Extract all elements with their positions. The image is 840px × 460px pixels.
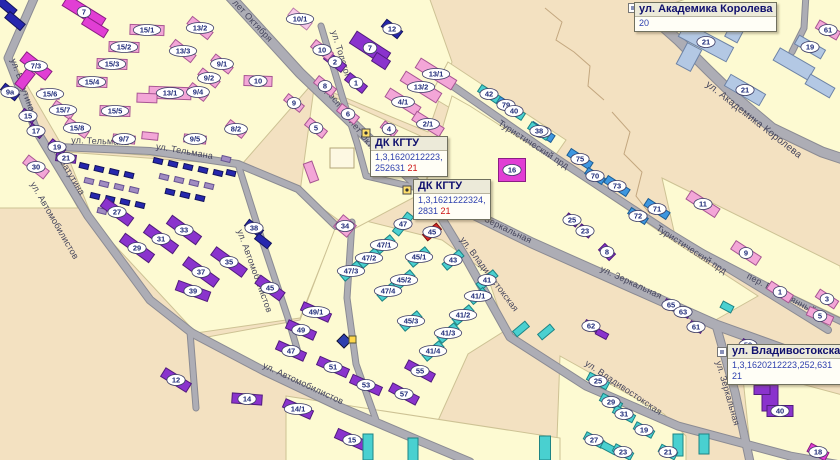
route-numbers: 1,3,1620212223, bbox=[375, 152, 443, 162]
building-number: 2 bbox=[333, 58, 337, 67]
map-tooltip-vladivostokskaya: ул. Владивостокская 1,3,1620212223,252,6… bbox=[727, 344, 840, 385]
building-number: 19 bbox=[806, 43, 814, 52]
building-number: 12 bbox=[388, 25, 396, 34]
building-number: 70 bbox=[591, 172, 599, 181]
tooltip-routes: 1,3,1620212223,252,63121 bbox=[728, 359, 840, 384]
building[interactable] bbox=[540, 436, 551, 460]
tooltip-title: ДК КГТУ bbox=[371, 137, 447, 151]
route-numbers: 21 bbox=[441, 206, 451, 216]
building[interactable] bbox=[142, 132, 159, 141]
building-number: 21 bbox=[62, 154, 70, 163]
building-number: 15/4 bbox=[85, 78, 100, 87]
building-number: 43 bbox=[449, 256, 457, 265]
building-number: 1 bbox=[354, 79, 358, 88]
building-number: 51 bbox=[329, 363, 337, 372]
tooltip-routes: 1,3,1620212223,252631 21 bbox=[371, 151, 447, 176]
building-number: 61 bbox=[692, 323, 700, 332]
building-number: 57 bbox=[400, 390, 408, 399]
building-number: 47/2 bbox=[362, 254, 377, 263]
building-number: 7 bbox=[82, 8, 86, 17]
route-numbers: 252631 bbox=[375, 163, 408, 173]
building-number: 35 bbox=[225, 258, 233, 267]
building[interactable] bbox=[754, 386, 770, 395]
tooltip-title: ул. Академика Королева bbox=[635, 3, 776, 17]
route-numbers: 21 bbox=[732, 371, 742, 381]
building-number: 15/1 bbox=[140, 26, 155, 35]
building-number: 47/3 bbox=[344, 267, 359, 276]
info-icon-glyph bbox=[720, 350, 724, 354]
building-number: 18 bbox=[814, 448, 822, 457]
building-number: 15/5 bbox=[108, 107, 123, 116]
building-number: 27 bbox=[590, 436, 598, 445]
building-number: 8 bbox=[323, 82, 327, 91]
building-number: 21 bbox=[741, 86, 749, 95]
building-number: 15 bbox=[24, 112, 32, 121]
route-numbers: 1,3,1621222324, bbox=[418, 195, 486, 205]
building-number: 3 bbox=[825, 295, 829, 304]
building-number: 11 bbox=[699, 200, 707, 209]
building-number: 13/2 bbox=[193, 24, 208, 33]
building-number: 14 bbox=[243, 395, 252, 404]
building-number: 5 bbox=[314, 124, 318, 133]
building-number: 25 bbox=[568, 216, 576, 225]
building-number: 7/3 bbox=[31, 62, 41, 71]
building[interactable] bbox=[408, 438, 418, 460]
building-number: 29 bbox=[607, 398, 615, 407]
map-viewport[interactable]: ул. Ватутинаул. Ватутинаул. Автомобилист… bbox=[0, 0, 840, 460]
building-number: 9а bbox=[6, 88, 15, 97]
building-number: 63 bbox=[679, 308, 687, 317]
building[interactable] bbox=[137, 93, 157, 103]
building-number: 17 bbox=[32, 127, 40, 136]
building-number: 40 bbox=[776, 407, 784, 416]
building-number: 15/2 bbox=[117, 43, 132, 52]
building-number: 27 bbox=[113, 208, 121, 217]
building-number: 39 bbox=[189, 287, 197, 296]
building-number: 40 bbox=[510, 107, 518, 116]
building-number: 62 bbox=[587, 322, 595, 331]
tooltip-title: ул. Владивостокская bbox=[728, 345, 840, 359]
building-number: 45/2 bbox=[397, 276, 412, 285]
building-number: 25 bbox=[594, 377, 602, 386]
building-number: 71 bbox=[653, 205, 661, 214]
building-number: 38 bbox=[250, 224, 258, 233]
building-number: 21 bbox=[664, 448, 672, 457]
building-number: 23 bbox=[619, 448, 627, 457]
building-number: 21 bbox=[702, 38, 710, 47]
building-number: 41/1 bbox=[471, 292, 486, 301]
building-number: 34 bbox=[341, 222, 350, 231]
route-numbers: 2831 bbox=[418, 206, 441, 216]
building-number: 19 bbox=[640, 426, 648, 435]
building-number: 47/1 bbox=[377, 241, 392, 250]
building-number: 9 bbox=[744, 249, 748, 258]
building-number: 45 bbox=[266, 284, 274, 293]
building[interactable] bbox=[330, 148, 354, 168]
building-number: 10 bbox=[254, 77, 262, 86]
route-numbers: 21 bbox=[408, 163, 418, 173]
building-number: 5 bbox=[818, 312, 822, 321]
flag-icon-base bbox=[349, 336, 356, 343]
building-number: 31 bbox=[620, 410, 628, 419]
building-number: 9/5 bbox=[190, 135, 200, 144]
building-number: 8/2 bbox=[231, 125, 241, 134]
building-number: 15/8 bbox=[70, 124, 85, 133]
building-number: 13/2 bbox=[414, 83, 429, 92]
building-number: 23 bbox=[581, 227, 589, 236]
building-number: 45/3 bbox=[404, 317, 419, 326]
building-number: 1 bbox=[778, 288, 782, 297]
building-number: 13/1 bbox=[429, 70, 444, 79]
building-number: 15 bbox=[348, 436, 356, 445]
building-number: 38 bbox=[535, 127, 543, 136]
building-number: 55 bbox=[416, 367, 424, 376]
building-number: 7 bbox=[368, 44, 372, 53]
building-number: 41/4 bbox=[426, 347, 441, 356]
building-number: 33 bbox=[180, 226, 188, 235]
building-number: 15/3 bbox=[105, 60, 120, 69]
building-number: 14/1 bbox=[291, 405, 306, 414]
building-number: 75 bbox=[576, 155, 584, 164]
building-number: 49 bbox=[297, 326, 305, 335]
building-number: 47 bbox=[399, 220, 407, 229]
bus-stop-icon-dot bbox=[364, 131, 367, 134]
building-number: 42 bbox=[485, 90, 493, 99]
building-number: 30 bbox=[32, 163, 40, 172]
building-number: 4/1 bbox=[398, 98, 408, 107]
building-number: 2/1 bbox=[423, 120, 433, 129]
building-number: 9 bbox=[292, 99, 296, 108]
building-number: 41 bbox=[483, 276, 491, 285]
building-number: 6 bbox=[346, 110, 350, 119]
building-number: 10 bbox=[318, 46, 326, 55]
map-tooltip-dk-kgtu-2: ДК КГТУ 1,3,1621222324,2831 21 bbox=[413, 179, 491, 220]
building-number: 13/1 bbox=[163, 89, 178, 98]
building-number: 8 bbox=[605, 248, 609, 257]
building-number: 49/1 bbox=[309, 308, 324, 317]
building-number: 65 bbox=[667, 301, 675, 310]
tooltip-title: ДК КГТУ bbox=[414, 180, 490, 194]
building-number: 73 bbox=[613, 182, 621, 191]
route-numbers: 1,3,1620212223,252,631 bbox=[732, 360, 832, 370]
building-number: 41/2 bbox=[456, 311, 471, 320]
map-tooltip-dk-kgtu-1: ДК КГТУ 1,3,1620212223,252631 21 bbox=[370, 136, 448, 177]
building-number: 15/7 bbox=[56, 106, 71, 115]
building-number: 9/1 bbox=[217, 60, 227, 69]
building-number: 12 bbox=[172, 376, 180, 385]
map-svg[interactable]: ул. Ватутинаул. Ватутинаул. Автомобилист… bbox=[0, 0, 840, 460]
bus-stop-icon-dot bbox=[405, 188, 408, 191]
tooltip-routes: 20 bbox=[635, 17, 776, 31]
building-number: 15/6 bbox=[43, 90, 58, 99]
building-number: 29 bbox=[133, 244, 141, 253]
building-number: 10/1 bbox=[293, 15, 308, 24]
building-number: 47 bbox=[287, 347, 295, 356]
building-number: 37 bbox=[197, 268, 205, 277]
building-number: 16 bbox=[508, 166, 516, 175]
building-number: 72 bbox=[634, 212, 642, 221]
building-number: 9/7 bbox=[119, 135, 129, 144]
route-numbers: 20 bbox=[639, 18, 649, 28]
tooltip-routes: 1,3,1621222324,2831 21 bbox=[414, 194, 490, 219]
building-number: 53 bbox=[362, 381, 370, 390]
map-tooltip-korolyova: ул. Академика Королева 20 bbox=[634, 2, 777, 32]
building[interactable] bbox=[699, 434, 709, 454]
building-number: 9/2 bbox=[204, 74, 214, 83]
building-number: 19 bbox=[53, 143, 61, 152]
building-number: 47/4 bbox=[381, 287, 396, 296]
building[interactable] bbox=[363, 434, 373, 460]
building-number: 61 bbox=[824, 26, 832, 35]
building-number: 45 bbox=[428, 228, 436, 237]
building-number: 45/1 bbox=[412, 253, 427, 262]
building-number: 31 bbox=[157, 235, 165, 244]
building-number: 9/4 bbox=[193, 88, 204, 97]
building-number: 41/3 bbox=[441, 329, 456, 338]
building-number: 13/3 bbox=[176, 47, 191, 56]
